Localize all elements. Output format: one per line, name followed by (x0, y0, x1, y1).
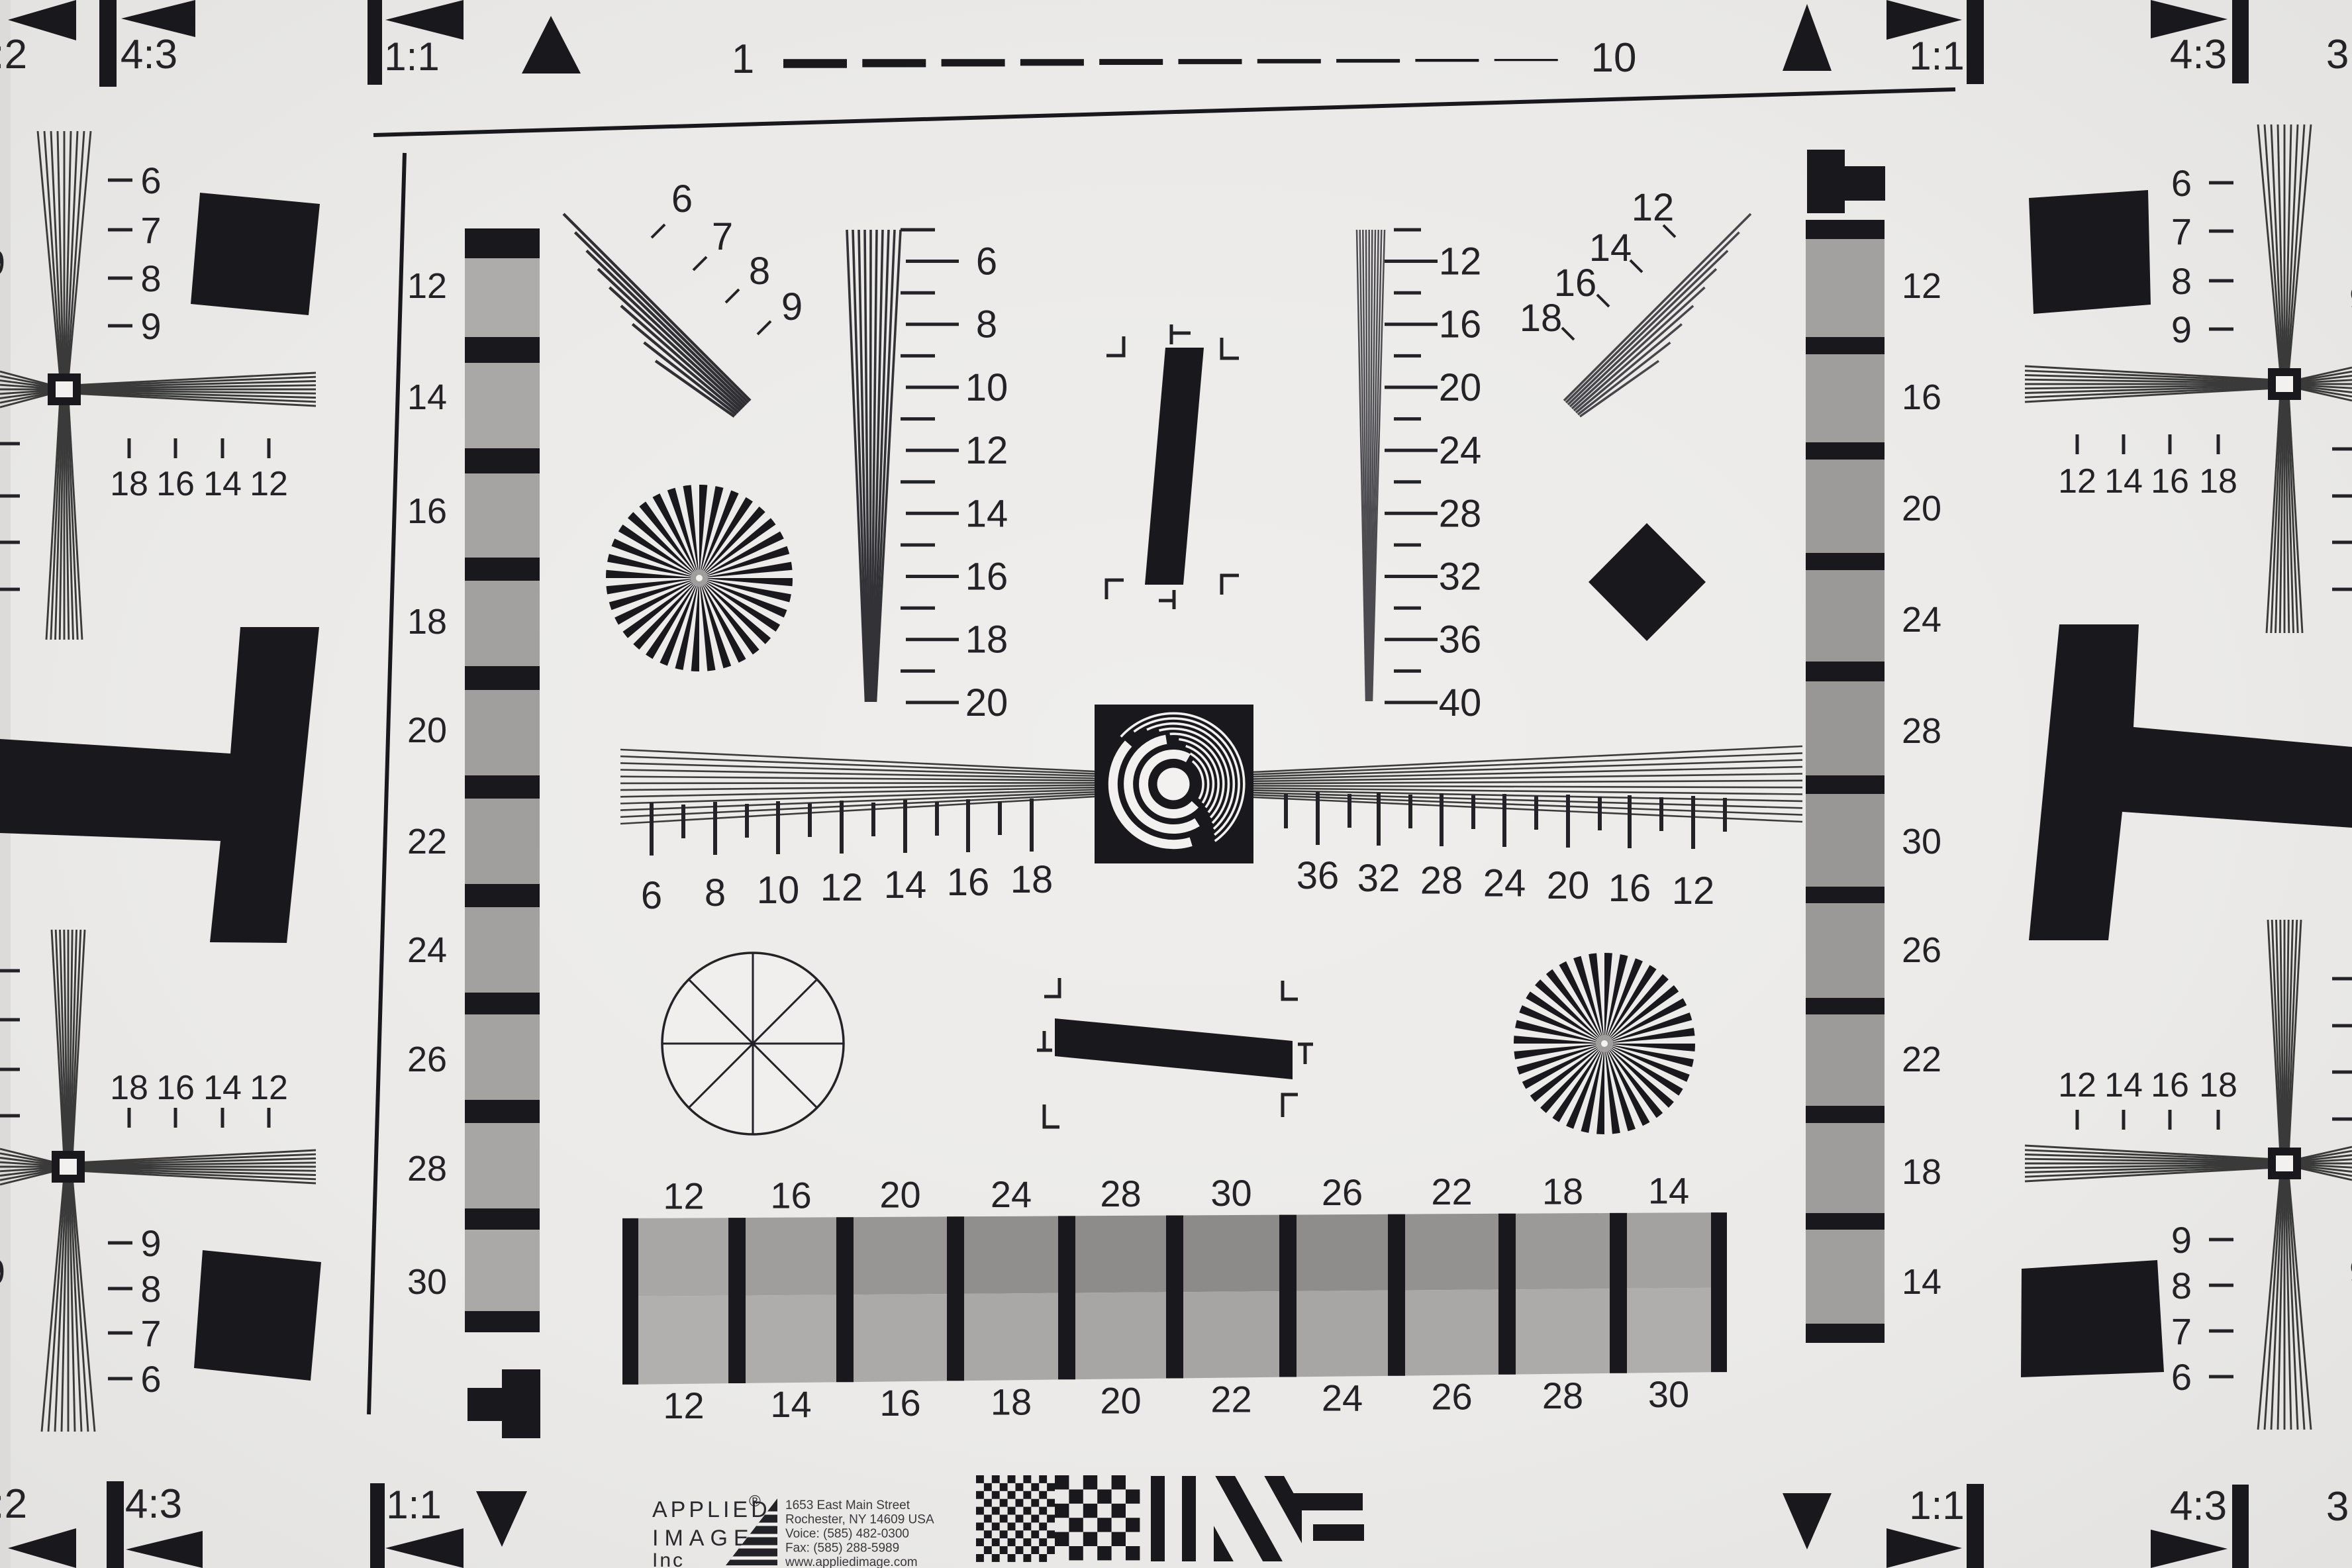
svg-text:Voice: (585) 482-0300: Voice: (585) 482-0300 (785, 1527, 909, 1541)
svg-text:6: 6 (976, 240, 997, 283)
svg-text:10: 10 (1591, 35, 1637, 81)
svg-text:9: 9 (2349, 1251, 2352, 1293)
svg-text:1:1: 1:1 (384, 34, 439, 79)
svg-text:6: 6 (2171, 162, 2192, 204)
svg-text:12: 12 (2058, 462, 2096, 501)
svg-text:24: 24 (1322, 1377, 1363, 1419)
svg-text:22: 22 (407, 822, 447, 861)
svg-text:20: 20 (1439, 366, 1482, 409)
svg-text:7: 7 (712, 215, 733, 258)
svg-text:28: 28 (1902, 711, 1941, 751)
svg-text:18: 18 (110, 465, 148, 503)
svg-text:8: 8 (2171, 260, 2192, 302)
svg-text:20: 20 (1902, 489, 1941, 528)
svg-text:12: 12 (407, 266, 447, 306)
svg-text:Rochester, NY 14609 USA: Rochester, NY 14609 USA (785, 1513, 934, 1527)
svg-text:12: 12 (1672, 869, 1715, 912)
svg-text:18: 18 (965, 618, 1008, 661)
svg-text:40: 40 (1439, 681, 1482, 724)
svg-text:9: 9 (2171, 1219, 2192, 1261)
svg-text:28: 28 (1100, 1173, 1141, 1214)
svg-text:16: 16 (407, 491, 447, 531)
svg-text:www.appliedimage.com: www.appliedimage.com (785, 1555, 918, 1568)
svg-text:16: 16 (1608, 867, 1651, 910)
svg-text:16: 16 (1439, 303, 1482, 346)
svg-text:9: 9 (2349, 277, 2352, 319)
svg-text:22: 22 (1902, 1040, 1941, 1079)
svg-text:28: 28 (1420, 859, 1463, 903)
svg-text:14: 14 (203, 1069, 242, 1107)
svg-text:20: 20 (407, 710, 447, 750)
svg-text:6: 6 (2171, 1356, 2192, 1398)
svg-text:8: 8 (2171, 1265, 2192, 1306)
svg-text:9: 9 (2171, 309, 2192, 350)
svg-text:12: 12 (1439, 240, 1482, 283)
svg-text:12: 12 (1902, 266, 1941, 306)
svg-text:10: 10 (757, 869, 800, 912)
svg-text:14: 14 (1648, 1170, 1689, 1212)
svg-text:14: 14 (407, 377, 447, 417)
svg-text:3:2: 3:2 (2326, 1484, 2352, 1530)
svg-text:12: 12 (2058, 1066, 2096, 1104)
svg-text:9: 9 (140, 305, 161, 347)
svg-text:32: 32 (1357, 857, 1400, 900)
svg-text:1:1: 1:1 (386, 1483, 441, 1527)
svg-text:14: 14 (965, 492, 1008, 535)
svg-text:7: 7 (140, 209, 161, 251)
svg-text:3:2: 3:2 (0, 1481, 27, 1527)
svg-text:16: 16 (2151, 1066, 2189, 1104)
svg-text:24: 24 (407, 930, 447, 970)
svg-text:18: 18 (1520, 297, 1563, 340)
svg-text:26: 26 (1902, 930, 1941, 970)
svg-text:30: 30 (407, 1262, 447, 1302)
svg-text:8: 8 (705, 871, 726, 914)
svg-text:®: ® (749, 1493, 761, 1510)
svg-text:16: 16 (770, 1175, 811, 1216)
svg-text:6: 6 (140, 1358, 161, 1400)
svg-text:4:3: 4:3 (121, 32, 177, 77)
svg-text:28: 28 (1439, 492, 1482, 535)
svg-text:6: 6 (641, 874, 662, 917)
svg-text:20: 20 (1547, 864, 1590, 907)
svg-text:24: 24 (1439, 429, 1482, 472)
svg-text:14: 14 (2104, 462, 2143, 501)
svg-text:16: 16 (156, 1069, 195, 1107)
svg-text:8: 8 (976, 303, 997, 346)
svg-text:26: 26 (1322, 1171, 1363, 1213)
svg-text:IMAGE: IMAGE (652, 1526, 755, 1551)
svg-text:36: 36 (1297, 854, 1340, 897)
svg-text:12: 12 (965, 429, 1008, 472)
svg-text:7: 7 (140, 1312, 161, 1354)
svg-text:14: 14 (1902, 1262, 1941, 1302)
svg-text:18: 18 (2199, 462, 2237, 501)
svg-text:14: 14 (2104, 1066, 2143, 1104)
svg-text:18: 18 (2199, 1066, 2237, 1104)
svg-text:36: 36 (1439, 618, 1482, 661)
svg-text:16: 16 (965, 556, 1008, 599)
svg-text:18: 18 (1010, 858, 1053, 901)
svg-text:18: 18 (110, 1069, 148, 1107)
svg-text:24: 24 (991, 1173, 1032, 1215)
svg-text:22: 22 (1431, 1171, 1472, 1212)
svg-text:9: 9 (0, 242, 5, 283)
svg-text:30: 30 (1902, 822, 1941, 861)
svg-text:14: 14 (884, 863, 927, 906)
svg-text:4:3: 4:3 (125, 1481, 182, 1527)
svg-text:7: 7 (2171, 1310, 2192, 1352)
svg-text:4:3: 4:3 (2170, 32, 2227, 77)
svg-text:22: 22 (1210, 1379, 1251, 1420)
svg-text:4:3: 4:3 (2170, 1483, 2227, 1529)
svg-text:12: 12 (663, 1385, 704, 1426)
svg-text:1:1: 1:1 (1909, 1483, 1964, 1528)
svg-text:3:2: 3:2 (0, 32, 27, 77)
svg-text:8: 8 (749, 250, 770, 293)
svg-text:30: 30 (1210, 1172, 1251, 1214)
svg-text:1: 1 (732, 36, 754, 82)
svg-text:12: 12 (1632, 186, 1675, 229)
svg-text:12: 12 (250, 465, 288, 503)
svg-text:Fax: (585) 288-5989: Fax: (585) 288-5989 (785, 1542, 899, 1555)
svg-text:20: 20 (879, 1174, 920, 1216)
svg-text:10: 10 (965, 366, 1008, 409)
svg-text:Inc: Inc (652, 1549, 685, 1568)
svg-text:16: 16 (879, 1382, 920, 1424)
svg-text:8: 8 (140, 258, 161, 299)
svg-text:1653 East Main Street: 1653 East Main Street (785, 1498, 910, 1512)
svg-text:18: 18 (991, 1381, 1032, 1422)
svg-text:3:2: 3:2 (2326, 32, 2352, 77)
svg-text:16: 16 (156, 465, 195, 503)
svg-text:20: 20 (965, 681, 1008, 724)
svg-text:9: 9 (0, 1251, 5, 1293)
svg-text:7: 7 (2171, 211, 2192, 252)
svg-text:9: 9 (781, 285, 803, 328)
svg-text:16: 16 (1902, 377, 1941, 417)
svg-text:26: 26 (1431, 1376, 1472, 1418)
svg-text:24: 24 (1483, 861, 1526, 905)
svg-text:1:1: 1:1 (1909, 34, 1964, 78)
svg-text:14: 14 (203, 465, 242, 503)
svg-text:18: 18 (1542, 1170, 1583, 1212)
svg-text:12: 12 (250, 1069, 288, 1107)
svg-text:32: 32 (1439, 556, 1482, 599)
svg-text:28: 28 (1542, 1375, 1583, 1416)
svg-text:18: 18 (1902, 1152, 1941, 1192)
svg-text:16: 16 (2151, 462, 2189, 501)
svg-text:8: 8 (140, 1268, 161, 1310)
svg-text:6: 6 (671, 177, 693, 220)
svg-text:6: 6 (140, 160, 161, 201)
svg-text:14: 14 (770, 1383, 811, 1425)
svg-text:20: 20 (1100, 1379, 1141, 1421)
svg-text:30: 30 (1648, 1373, 1689, 1415)
svg-text:16: 16 (947, 861, 990, 904)
svg-text:26: 26 (407, 1040, 447, 1079)
svg-text:12: 12 (663, 1175, 704, 1217)
svg-text:18: 18 (407, 602, 447, 642)
svg-text:24: 24 (1902, 600, 1941, 640)
svg-text:28: 28 (407, 1149, 447, 1189)
svg-text:9: 9 (140, 1222, 161, 1264)
svg-text:12: 12 (820, 866, 863, 909)
